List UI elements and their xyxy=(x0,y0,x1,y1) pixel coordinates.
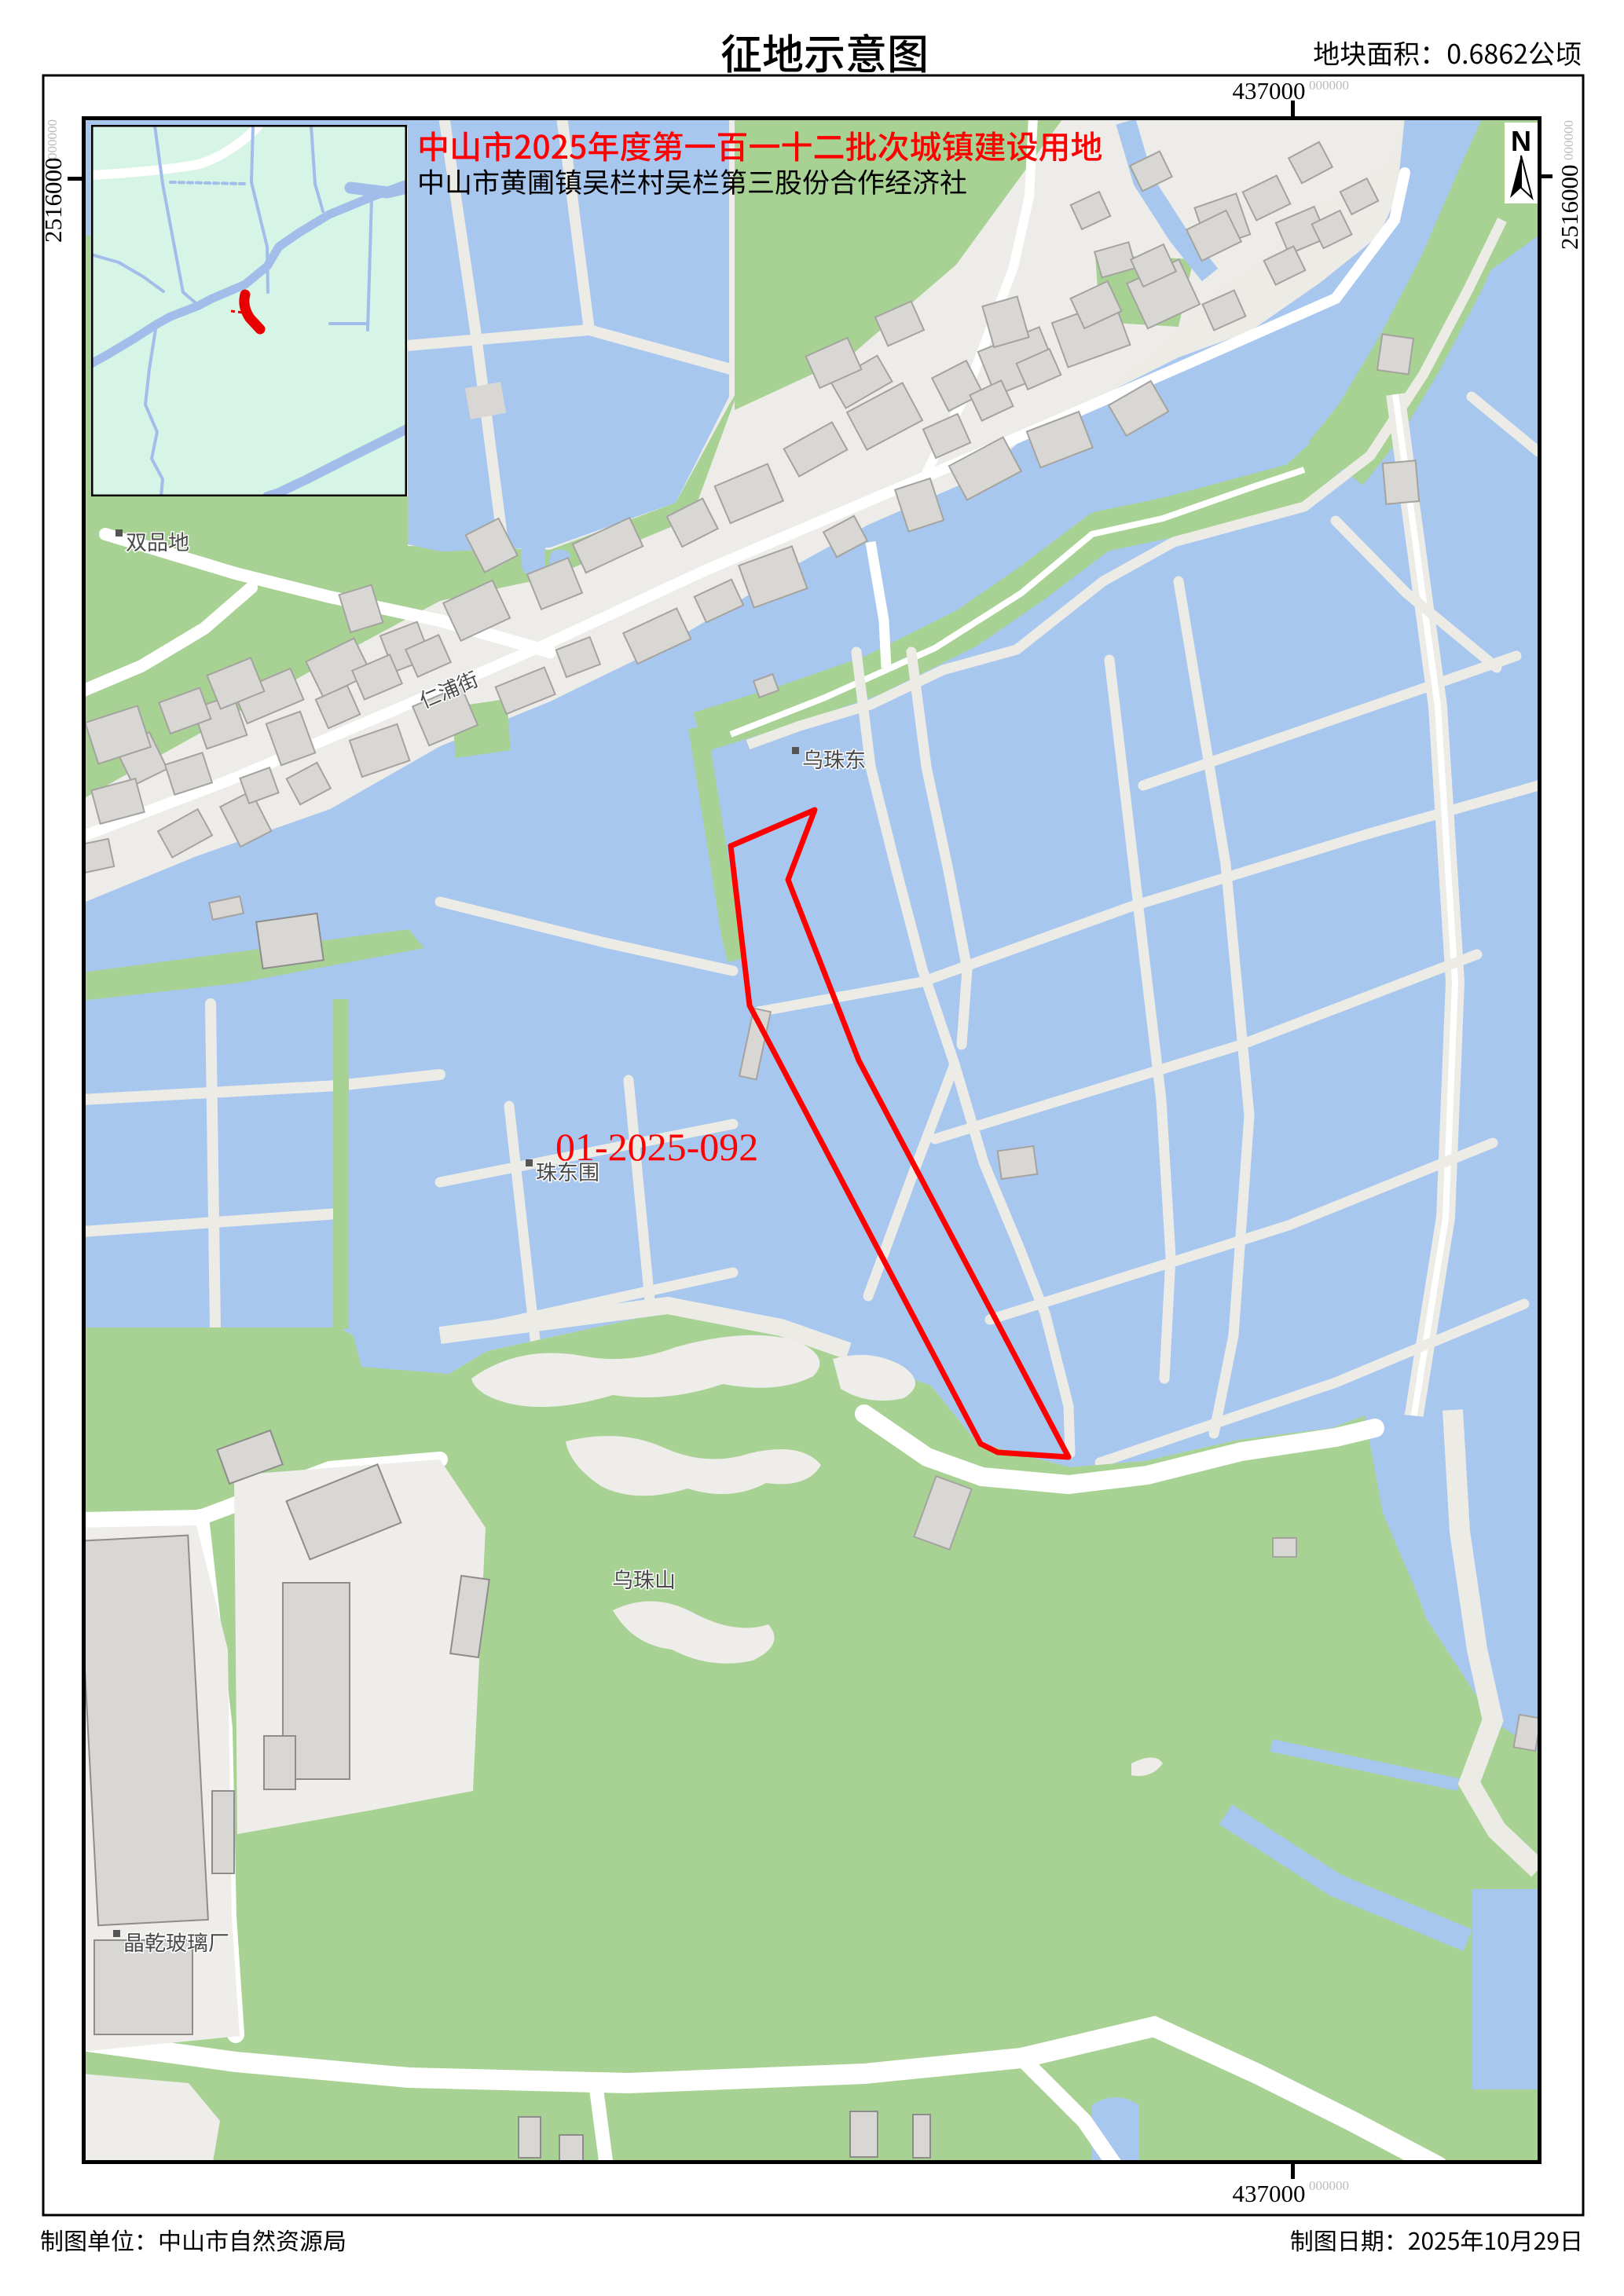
svg-text:2516000: 2516000 xyxy=(39,158,67,244)
svg-text:437000: 437000 xyxy=(1233,77,1306,104)
svg-text:000000: 000000 xyxy=(1561,120,1576,160)
svg-text:2516000: 2516000 xyxy=(1556,165,1583,251)
svg-text:437000: 437000 xyxy=(1233,2180,1306,2207)
svg-text:N: N xyxy=(1511,125,1531,157)
svg-text:000000: 000000 xyxy=(1309,78,1349,93)
svg-text:000000: 000000 xyxy=(1309,2178,1349,2193)
svg-text:000000: 000000 xyxy=(45,119,60,159)
